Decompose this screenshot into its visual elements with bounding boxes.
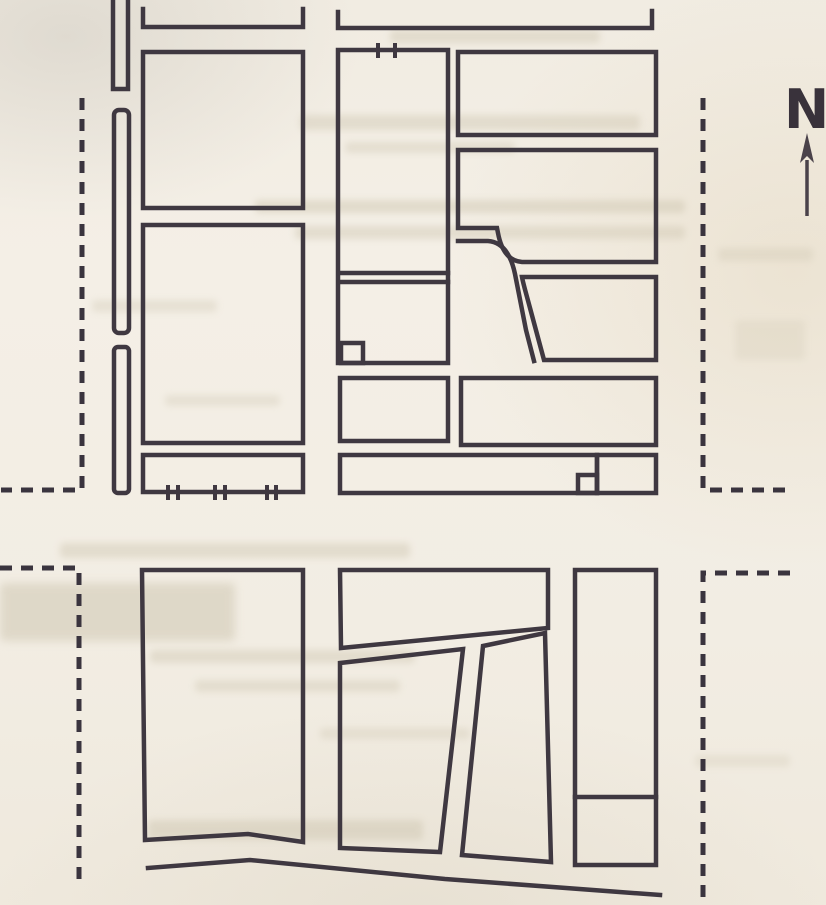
median-strip-upper (114, 110, 129, 333)
bleedthrough-smudge (320, 728, 470, 739)
top-street-edge-right (338, 11, 652, 28)
bleedthrough-smudge (695, 755, 790, 767)
block-east-3-curved (522, 277, 656, 360)
scanned-map-page: N (0, 0, 826, 905)
bleedthrough-smudge (60, 543, 410, 558)
block-south-mid-3 (462, 633, 551, 862)
block-mid-1-corner-lot (341, 343, 363, 363)
bleedthrough-smudge (92, 300, 217, 312)
block-west-2 (143, 225, 303, 443)
map-boundary-east-upper (703, 98, 789, 490)
map-boundary-west-upper (1, 98, 82, 490)
strip-small-lot (578, 475, 597, 493)
street-map-drawing: N (0, 0, 826, 905)
compass-north-label: N (784, 78, 826, 141)
top-street-edge-left (143, 9, 303, 27)
block-mid-2 (340, 378, 448, 441)
map-boundary-east-lower (703, 573, 790, 897)
strip-central (340, 455, 597, 493)
block-southeast-column (575, 570, 656, 865)
bleedthrough-smudge (390, 30, 600, 43)
curved-road-west-edge (458, 241, 534, 361)
north-arrow-icon (800, 133, 814, 216)
block-east-4 (461, 378, 656, 445)
bleedthrough-smudge (255, 200, 685, 213)
north-lane-channel (113, 0, 128, 89)
median-strip-lower (114, 347, 129, 493)
bleedthrough-smudge (718, 248, 813, 261)
strip-east-box (597, 455, 656, 493)
bleedthrough-smudge (195, 680, 400, 692)
bleedthrough-smudge (165, 395, 280, 406)
block-west-1 (143, 52, 303, 208)
bleedthrough-smudge (0, 583, 235, 641)
bleedthrough-smudge (300, 115, 640, 130)
bleedthrough-smudge (735, 320, 805, 360)
block-south-mid-1 (340, 570, 548, 648)
north-compass: N (784, 78, 826, 216)
